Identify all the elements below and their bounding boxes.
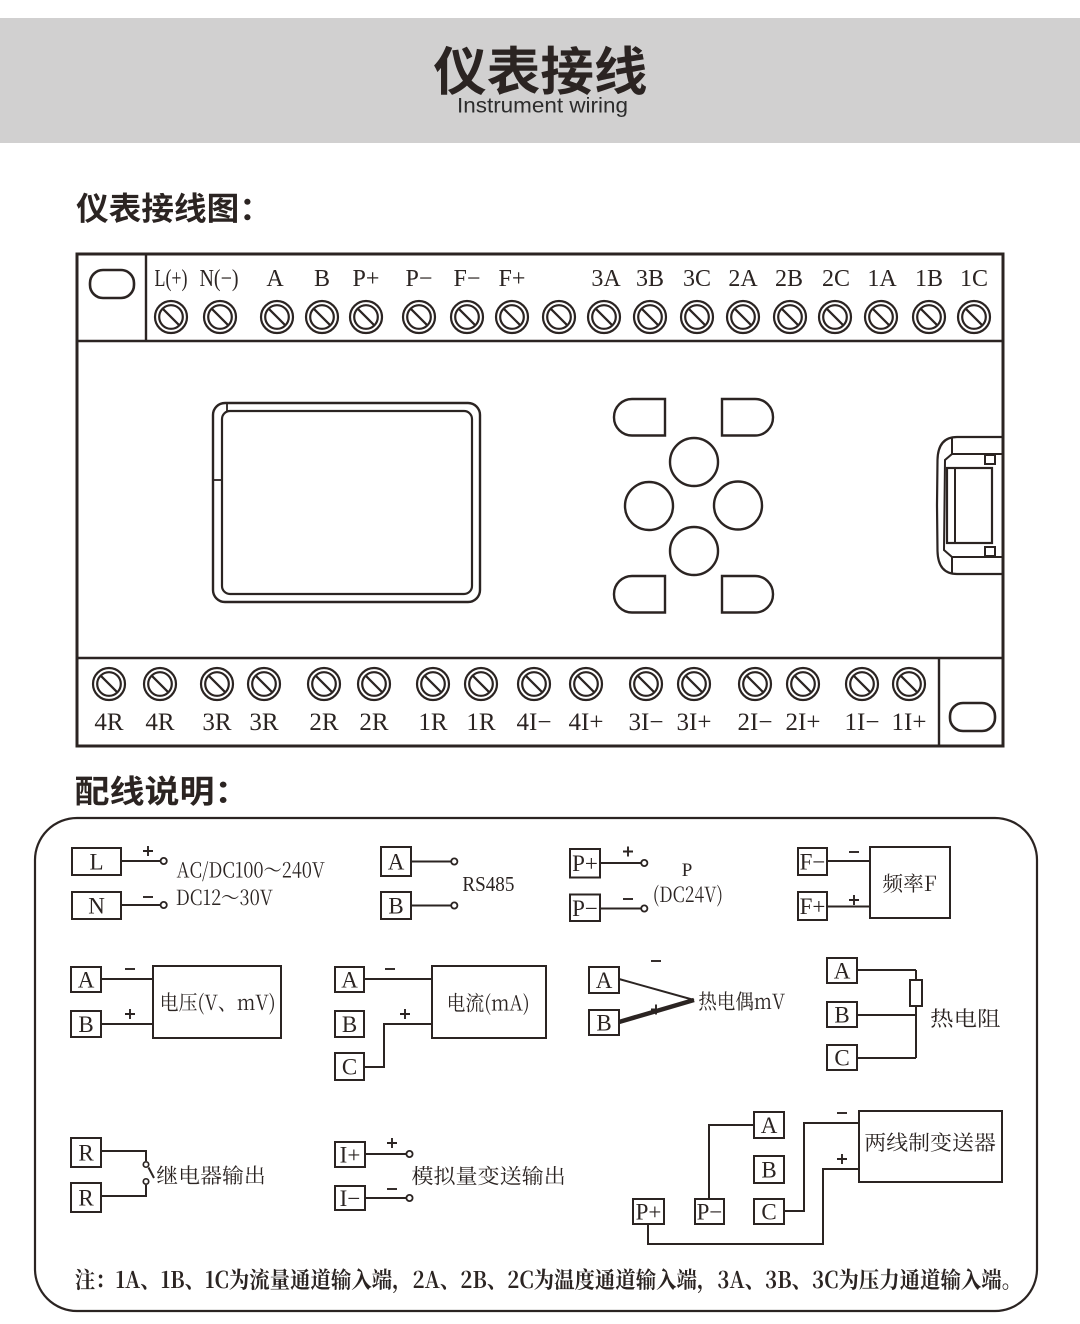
svg-text:R: R <box>78 1141 94 1166</box>
svg-text:P+: P+ <box>353 266 380 292</box>
svg-text:B: B <box>596 1011 611 1036</box>
svg-text:A: A <box>388 850 405 875</box>
svg-text:P+: P+ <box>572 851 598 876</box>
svg-text:4R: 4R <box>145 709 175 736</box>
svg-text:P−: P− <box>697 1200 723 1225</box>
svg-text:C: C <box>342 1055 357 1080</box>
svg-text:2I−: 2I− <box>738 709 773 736</box>
svg-text:2B: 2B <box>775 266 803 292</box>
svg-text:B: B <box>342 1012 357 1037</box>
svg-text:1B: 1B <box>915 266 943 292</box>
svg-text:4R: 4R <box>94 709 124 736</box>
svg-text:RS485: RS485 <box>462 872 514 896</box>
svg-text:2C: 2C <box>822 266 850 292</box>
svg-text:P−: P− <box>406 266 433 292</box>
svg-text:1I−: 1I− <box>845 709 880 736</box>
svg-text:B: B <box>388 894 403 919</box>
svg-text:3C: 3C <box>683 266 711 292</box>
svg-text:R: R <box>78 1186 94 1211</box>
svg-text:A: A <box>78 968 95 993</box>
svg-text:F−: F− <box>454 266 481 292</box>
svg-text:2R: 2R <box>359 709 389 736</box>
svg-text:B: B <box>78 1012 93 1037</box>
svg-text:Instrument wiring: Instrument wiring <box>457 95 628 118</box>
svg-text:3I−: 3I− <box>629 709 664 736</box>
svg-text:N: N <box>88 894 105 919</box>
svg-text:A: A <box>834 959 851 984</box>
svg-text:3A: 3A <box>591 266 621 292</box>
svg-text:P−: P− <box>572 896 598 921</box>
svg-text:B: B <box>761 1158 776 1183</box>
svg-text:3B: 3B <box>636 266 664 292</box>
svg-text:F+: F+ <box>499 266 526 292</box>
svg-text:1C: 1C <box>960 266 988 292</box>
svg-text:P: P <box>682 860 693 881</box>
svg-text:P+: P+ <box>636 1200 662 1225</box>
svg-text:2R: 2R <box>309 709 339 736</box>
svg-text:1R: 1R <box>466 709 496 736</box>
svg-text:2A: 2A <box>728 266 758 292</box>
svg-text:L: L <box>89 850 103 875</box>
svg-text:F+: F+ <box>800 894 826 919</box>
svg-text:4I+: 4I+ <box>569 709 604 736</box>
svg-text:A: A <box>341 968 358 993</box>
svg-text:I+: I+ <box>340 1143 361 1168</box>
svg-text:N(−): N(−) <box>200 266 239 292</box>
svg-text:C: C <box>834 1046 849 1071</box>
svg-text:3R: 3R <box>202 709 232 736</box>
svg-text:1R: 1R <box>418 709 448 736</box>
svg-text:A: A <box>761 1113 778 1138</box>
svg-text:A: A <box>266 266 284 292</box>
svg-text:B: B <box>314 266 330 292</box>
svg-text:L(+): L(+) <box>155 266 188 292</box>
svg-text:2I+: 2I+ <box>786 709 821 736</box>
svg-text:A: A <box>596 968 613 993</box>
svg-text:C: C <box>761 1200 776 1225</box>
svg-text:4I−: 4I− <box>517 709 552 736</box>
svg-text:1I+: 1I+ <box>892 709 927 736</box>
svg-text:1A: 1A <box>867 266 897 292</box>
svg-text:I−: I− <box>340 1186 361 1211</box>
svg-text:B: B <box>834 1003 849 1028</box>
svg-text:3I+: 3I+ <box>677 709 712 736</box>
svg-text:F−: F− <box>800 850 826 875</box>
svg-text:3R: 3R <box>249 709 279 736</box>
